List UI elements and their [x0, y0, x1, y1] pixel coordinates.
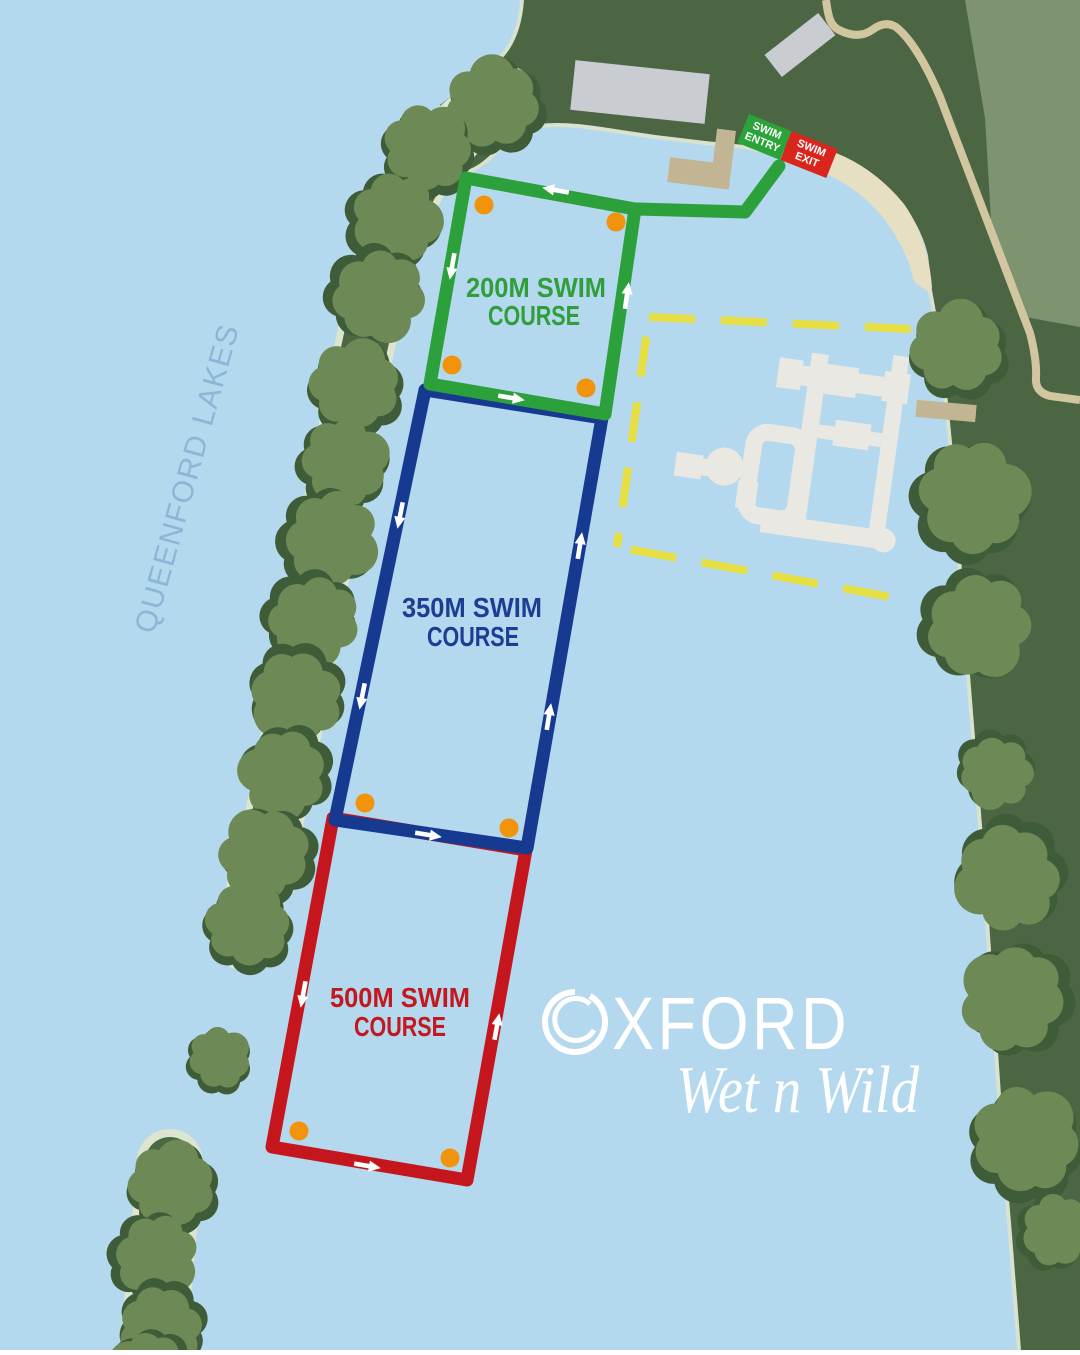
- svg-text:200M SWIM: 200M SWIM: [466, 272, 606, 303]
- svg-text:COURSE: COURSE: [354, 1011, 446, 1042]
- svg-text:500M SWIM: 500M SWIM: [330, 982, 470, 1013]
- svg-text:350M SWIM: 350M SWIM: [402, 592, 542, 623]
- svg-text:Wet n Wild: Wet n Wild: [676, 1053, 919, 1127]
- svg-text:COURSE: COURSE: [427, 621, 519, 652]
- svg-text:COURSE: COURSE: [488, 300, 580, 331]
